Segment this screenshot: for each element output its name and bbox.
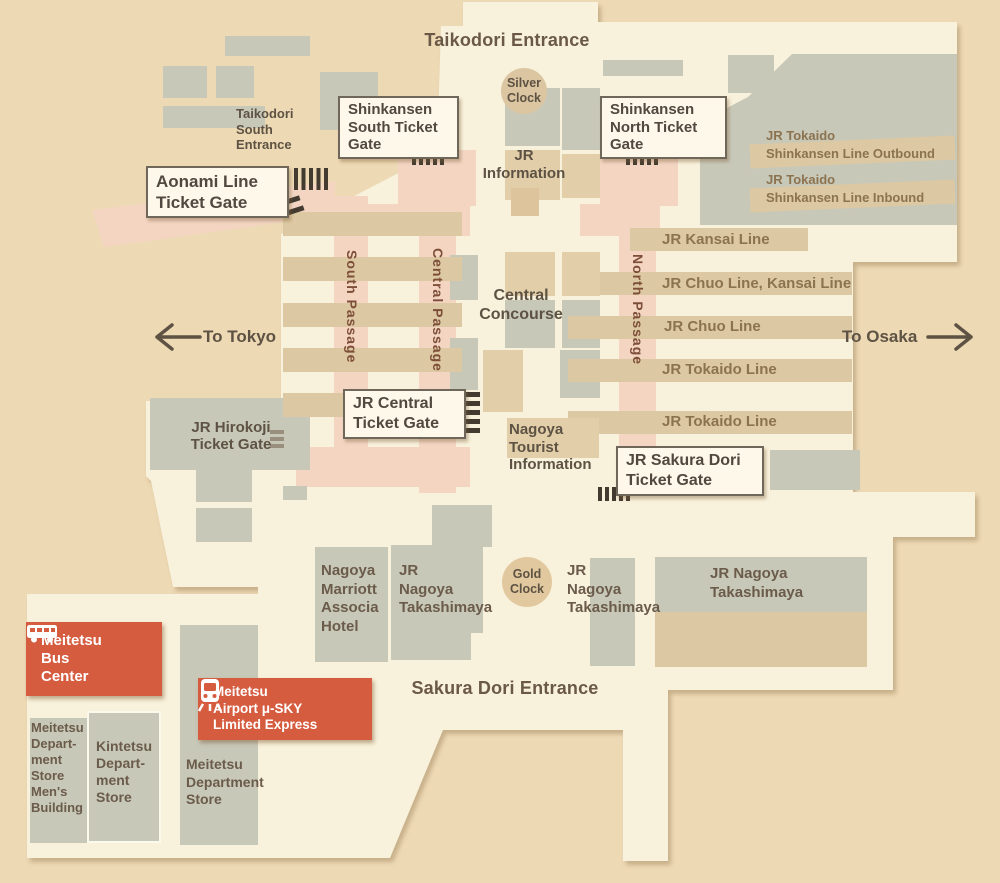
shinkansen-north-ticket-gate-box: Shinkansen North Ticket Gate	[600, 96, 727, 159]
jr-kansai-line-label: JR Kansai Line	[662, 231, 770, 248]
meitetsu-bus-center-box: Meitetsu Bus Center	[26, 622, 162, 696]
jr-hirokoji-ticket-gate-label: JR Hirokoji Ticket Gate	[155, 419, 307, 453]
jr-tokaido-line-label-2: JR Tokaido Line	[662, 413, 777, 430]
shinkansen-outbound-label: JR Tokaido Shinkansen Line Outbound	[766, 127, 935, 163]
jr-chuo-line-label: JR Chuo Line	[664, 318, 761, 335]
taikodori-entrance-label: Taikodori Entrance	[377, 30, 637, 51]
jr-information-desk	[511, 188, 539, 216]
to-tokyo-arrow-icon	[157, 325, 200, 349]
marriott-hotel-label: Nagoya Marriott Associa Hotel	[321, 562, 379, 636]
kintetsu-department-store-label: Kintetsu Depart- ment Store	[96, 738, 152, 806]
nagoya-tourist-information-label: Nagoya Tourist Information	[509, 421, 592, 474]
aonami-line-ticket-gate-box: Aonami Line Ticket Gate	[146, 166, 289, 218]
to-osaka-label: To Osaka	[842, 327, 917, 347]
sakura-dori-entrance-label: Sakura Dori Entrance	[350, 678, 660, 699]
south-passage-label: South Passage	[344, 250, 360, 363]
central-concourse-label: Central Concourse	[431, 287, 611, 324]
meitetsu-department-store-label: Meitetsu Department Store	[186, 756, 264, 809]
meitetsu-airport-express-box: Meitetsu Airport μ-SKY Limited Express	[198, 678, 372, 740]
jr-central-ticket-gate-box: JR Central Ticket Gate	[343, 389, 466, 439]
gold-clock-label: Gold Clock	[487, 567, 567, 597]
jr-chuo-kansai-line-label: JR Chuo Line, Kansai Line	[662, 275, 851, 292]
takashimaya-main-label: JR Nagoya Takashimaya	[710, 565, 803, 602]
takashimaya-west-label: JR Nagoya Takashimaya	[399, 562, 492, 618]
shinkansen-inbound-label: JR Tokaido Shinkansen Line Inbound	[766, 171, 924, 207]
silver-clock-label: Silver Clock	[484, 76, 564, 106]
shinkansen-south-ticket-gate-box: Shinkansen South Ticket Gate	[338, 96, 459, 159]
meitetsu-airport-express-label: Meitetsu Airport μ-SKY Limited Express	[213, 684, 317, 734]
north-passage-label: North Passage	[630, 254, 646, 365]
takashimaya-east-label: JR Nagoya Takashimaya	[567, 562, 660, 618]
meitetsu-mens-building-label: Meitetsu Depart- ment Store Men's Buildi…	[31, 720, 84, 816]
to-osaka-arrow-icon	[928, 325, 971, 349]
jr-sakura-dori-ticket-gate-box: JR Sakura Dori Ticket Gate	[616, 446, 764, 496]
jr-information-label: JR Information	[454, 147, 594, 183]
to-tokyo-label: To Tokyo	[203, 327, 276, 347]
jr-tokaido-line-label-1: JR Tokaido Line	[662, 361, 777, 378]
nagoya-station-map: Taikodori Entrance Silver Clock Taikodor…	[0, 0, 1000, 883]
central-passage-label: Central Passage	[430, 248, 446, 372]
taikodori-south-entrance-label: Taikodori South Entrance	[236, 106, 294, 153]
